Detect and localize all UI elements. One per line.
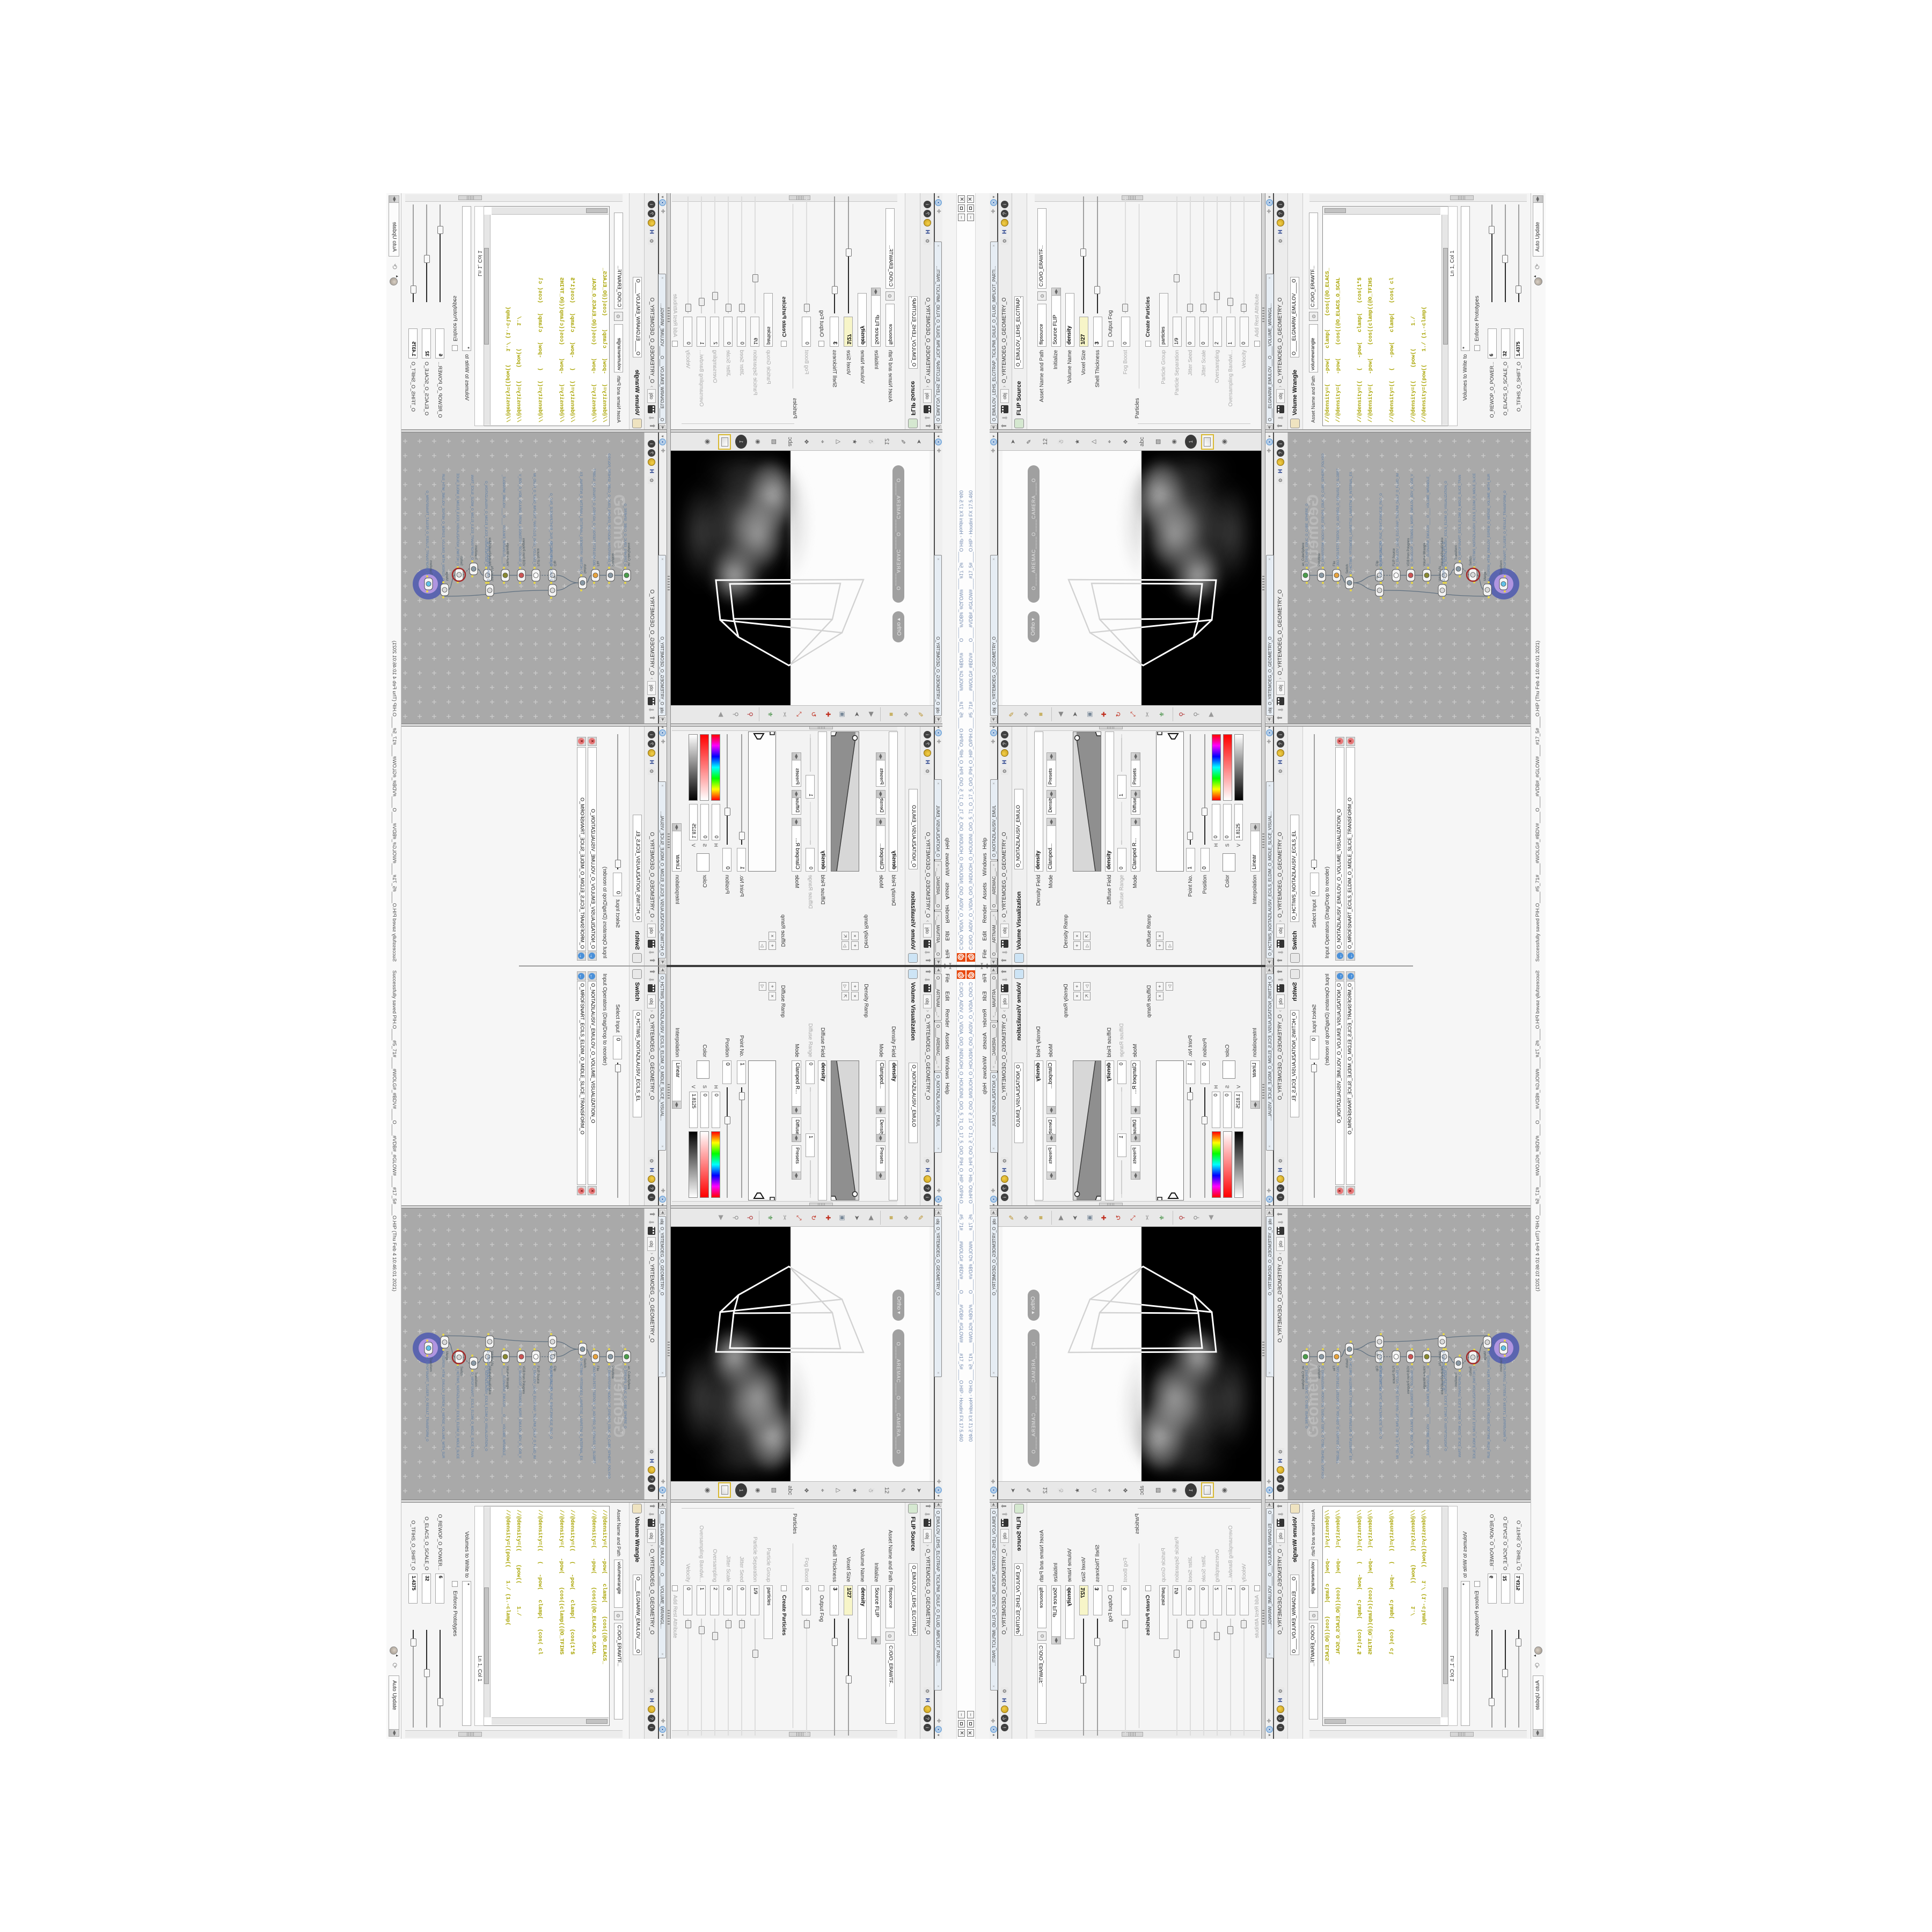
- svg-text:O_HCTIWS_YRTEMOEG_LANRETXE_LAN: O_HCTIWS_YRTEMOEG_LANRETXE_LANRETNI_O_IN…: [579, 472, 582, 574]
- svg-text:O_EACGHDULVK_PILC_O: O_EACGHDULVK_PILC_O: [1380, 541, 1383, 581]
- svg-text:Transform: Transform: [1455, 545, 1458, 560]
- svg-text:Merge: Merge: [445, 571, 448, 581]
- svg-text:Switch: Switch: [459, 556, 463, 566]
- svg-text:O_EGREM_HTIW_EMULOV_EGREM_O_ME: O_EGREM_HTIW_EMULOV_EGREM_O_MERGE_VOLUME…: [441, 1351, 444, 1459]
- svg-text:Transform: Transform: [429, 560, 432, 575]
- svg-text:O_EREHPS_EBUC_O_CUBE_SPHERE_O: O_EREHPS_EBUC_O_CUBE_SPHERE_O: [623, 503, 626, 566]
- svg-text:O_MROFSNART_ECILS_ELDIM_O_MIDL: O_MROFSNART_ECILS_ELDIM_O_MIDLE_SLICE_TR…: [470, 1372, 473, 1457]
- svg-text:VolumeVis: VolumeVis: [490, 1351, 493, 1366]
- svg-text:O_MROFSNART_TLUSER_O_RESULT_TR: O_MROFSNART_TLUSER_O_RESULT_TRANSFORM_O: [1504, 1357, 1507, 1441]
- svg-text:O_MROFSNART_ECILS_ELDIM_O_MIDL: O_MROFSNART_ECILS_ELDIM_O_MIDLE_SLICE_TR…: [1459, 1372, 1462, 1457]
- svg-text:Transform: Transform: [1500, 1357, 1503, 1372]
- svg-text:O_EGREM_HTIW_EMULOV_EGREM_O_ME: O_EGREM_HTIW_EMULOV_EGREM_O_MERGE_VOLUME…: [1488, 473, 1491, 581]
- svg-text:Clip: Clip: [1376, 1351, 1379, 1357]
- svg-text:O_SNOGLOP_YRTEMOEG_MORF_EMULOV: O_SNOGLOP_YRTEMOEG_MORF_EMULOV_BDV_O_VDB…: [1411, 474, 1414, 566]
- svg-text:Clip: Clip: [553, 575, 556, 581]
- svg-text:JBO.MD3.PETS.TSEPOLS_O_AGUNEG_: JBO.MD3.PETS.TSEPOLS_O_AGUNEG_O_GENUSS_O…: [592, 469, 595, 566]
- svg-text:VDB from Polygons: VDB from Polygons: [1407, 1366, 1410, 1394]
- svg-text:O_MQKGRTBSLKJ_SIV_O: O_MQKGRTBSLKJ_SIV_O: [486, 541, 489, 581]
- svg-text:Transform: Transform: [474, 545, 477, 560]
- svg-text:O_EMARFERIW_NOGYLOP_EREHPS_EBU: O_EMARFERIW_NOGYLOP_EREHPS_EBUC_O_CUBE_S…: [1322, 453, 1325, 566]
- svg-text:O_HCTIWS_YRTEMOEG_LANRETXE_LAN: O_HCTIWS_YRTEMOEG_LANRETXE_LANRETNI_O_IN…: [1350, 472, 1353, 574]
- svg-text:O_MQKGRTBSLKJ_SIV_O: O_MQKGRTBSLKJ_SIV_O: [1443, 541, 1446, 581]
- svg-text:O_SNOGLOP_YRTEMOEG_MORF_EMULOV: O_SNOGLOP_YRTEMOEG_MORF_EMULOV_BDV_O_VDB…: [1411, 1366, 1414, 1458]
- svg-text:VDB from Polygons: VDB from Polygons: [1407, 538, 1410, 566]
- svg-text:O_EGREM_HTIW_EMULOV_EGREM_O_ME: O_EGREM_HTIW_EMULOV_EGREM_O_MERGE_VOLUME…: [441, 473, 444, 581]
- svg-text:O_HCTIWS_NOITAZILAUSIV_ECILS_E: O_HCTIWS_NOITAZILAUSIV_ECILS_ELDIM_O_MID…: [1473, 473, 1476, 566]
- svg-text:O_EMARFERIW_NOGYLOP_EREHPS_EBU: O_EMARFERIW_NOGYLOP_EREHPS_EBUC_O_CUBE_S…: [1322, 1366, 1325, 1479]
- svg-text:Switch: Switch: [583, 564, 586, 574]
- svg-text:O_MROFSNART_TLUSER_O_RESULT_TR: O_MROFSNART_TLUSER_O_RESULT_TRANSFORM_O: [1504, 491, 1507, 575]
- svg-text:File: File: [596, 1366, 599, 1371]
- svg-text:Volume Wrangle: Volume Wrangle: [506, 1366, 509, 1390]
- svg-text:VDB from Polygons: VDB from Polygons: [522, 1366, 525, 1394]
- svg-text:VolumeVis: VolumeVis: [1439, 1351, 1442, 1366]
- svg-text:O_EREHPS_EBUC_O_CUBE_SPHERE_O: O_EREHPS_EBUC_O_CUBE_SPHERE_O: [1306, 503, 1309, 566]
- svg-text:Volume Wrangle: Volume Wrangle: [1423, 542, 1426, 566]
- svg-text:JBO.MD3.PETS.TSEPOLS_O_AGUNEG_: JBO.MD3.PETS.TSEPOLS_O_AGUNEG_O_GENUSS_O…: [1337, 469, 1340, 566]
- svg-text:O____ELGNARW_EMULOV____O____VO: O____ELGNARW_EMULOV____O____VOLUME_WRANG…: [1427, 1366, 1430, 1458]
- svg-text:O_EMARFERIW_NOGYLOP_EREHPS_EBU: O_EMARFERIW_NOGYLOP_EREHPS_EBUC_O_CUBE_S…: [607, 453, 610, 566]
- svg-text:an_CubeSphere: an_CubeSphere: [1302, 1366, 1305, 1389]
- svg-text:O_EREHPS_EBUC_O_CUBE_SPHERE_O: O_EREHPS_EBUC_O_CUBE_SPHERE_O: [1306, 1366, 1309, 1429]
- svg-text:O_HCTIWS_YRTEMOEG_LANRETXE_LAN: O_HCTIWS_YRTEMOEG_LANRETXE_LANRETNI_O_IN…: [1350, 1358, 1353, 1460]
- svg-text:O_EREHPS_EBUC_O_CUBE_SPHERE_O: O_EREHPS_EBUC_O_CUBE_SPHERE_O: [623, 1366, 626, 1429]
- svg-text:FLIP Source: FLIP Source: [1393, 548, 1396, 566]
- svg-text:PolyWire: PolyWire: [611, 1366, 614, 1379]
- svg-text:Volume Wrangle: Volume Wrangle: [1423, 1366, 1426, 1390]
- svg-text:Clip: Clip: [1376, 1366, 1379, 1372]
- svg-text:Clip: Clip: [553, 560, 556, 566]
- svg-text:Clip: Clip: [1376, 575, 1379, 581]
- svg-text:Transform: Transform: [474, 1372, 477, 1387]
- svg-text:Clip: Clip: [553, 1351, 556, 1357]
- svg-text:Merge: Merge: [1484, 1351, 1487, 1361]
- svg-text:O_EMULOV_LEHS_ELCITRAP_TICILPM: O_EMULOV_LEHS_ELCITRAP_TICILPMI_DIULF_O_…: [532, 1366, 536, 1459]
- svg-text:O_EACGHDULVK_PILC_O: O_EACGHDULVK_PILC_O: [1380, 1351, 1383, 1391]
- svg-text:Switch: Switch: [1469, 556, 1473, 566]
- svg-text:O_EGREM_HTIW_EMULOV_EGREM_O_ME: O_EGREM_HTIW_EMULOV_EGREM_O_MERGE_VOLUME…: [1488, 1351, 1491, 1459]
- svg-text:JBO.MD3.PETS.TSEPOLS_O_AGUNEG_: JBO.MD3.PETS.TSEPOLS_O_AGUNEG_O_GENUSS_O…: [592, 1366, 595, 1463]
- svg-text:FLIP Source: FLIP Source: [1393, 1366, 1396, 1384]
- svg-text:O____ELGNARW_EMULOV____O____VO: O____ELGNARW_EMULOV____O____VOLUME_WRANG…: [1427, 474, 1430, 566]
- svg-text:PolyWire: PolyWire: [1318, 1366, 1321, 1379]
- svg-text:FLIP Source: FLIP Source: [536, 548, 539, 566]
- svg-text:Switch: Switch: [1346, 1358, 1349, 1368]
- svg-text:O_EMARFERIW_NOGYLOP_EREHPS_EBU: O_EMARFERIW_NOGYLOP_EREHPS_EBUC_O_CUBE_S…: [607, 1366, 610, 1479]
- svg-text:O_MQKGRTBSLKJ_SIV_O: O_MQKGRTBSLKJ_SIV_O: [1443, 1351, 1446, 1391]
- svg-text:O_MQKGRTBSLKJ_SIV_O: O_MQKGRTBSLKJ_SIV_O: [486, 1351, 489, 1391]
- svg-text:O_EACGHDULVK_PILC_O: O_EACGHDULVK_PILC_O: [549, 1351, 552, 1391]
- svg-text:JBO.MD3.PETS.TSEPOLS_O_AGUNEG_: JBO.MD3.PETS.TSEPOLS_O_AGUNEG_O_GENUSS_O…: [1337, 1366, 1340, 1463]
- svg-text:O_HCTIWS_YRTEMOEG_LANRETXE_LAN: O_HCTIWS_YRTEMOEG_LANRETXE_LANRETNI_O_IN…: [579, 1358, 582, 1460]
- svg-text:O____ELGNARW_EMULOV____O____VO: O____ELGNARW_EMULOV____O____VOLUME_WRANG…: [502, 474, 505, 566]
- svg-text:File: File: [1333, 561, 1336, 566]
- svg-text:Switch: Switch: [1346, 564, 1349, 574]
- svg-text:Transform: Transform: [1455, 1372, 1458, 1387]
- svg-text:O_EACGHDULVK_PILC_O: O_EACGHDULVK_PILC_O: [549, 541, 552, 581]
- svg-text:an_CubeSphere: an_CubeSphere: [627, 1366, 630, 1389]
- svg-text:an_CubeSphere: an_CubeSphere: [627, 543, 630, 566]
- svg-text:O_HCTIWS_NOITAZILAUSIV_ECILS_E: O_HCTIWS_NOITAZILAUSIV_ECILS_ELDIM_O_MID…: [456, 1366, 459, 1459]
- svg-text:Clip: Clip: [553, 1366, 556, 1372]
- svg-text:Transform: Transform: [1500, 560, 1503, 575]
- svg-text:O_MROFSNART_ECILS_ELDIM_O_MIDL: O_MROFSNART_ECILS_ELDIM_O_MIDLE_SLICE_TR…: [1459, 475, 1462, 560]
- svg-text:Switch: Switch: [459, 1366, 463, 1376]
- svg-text:VDB from Polygons: VDB from Polygons: [522, 538, 525, 566]
- svg-text:File: File: [596, 561, 599, 566]
- svg-text:O_HCTIWS_NOITAZILAUSIV_ECILS_E: O_HCTIWS_NOITAZILAUSIV_ECILS_ELDIM_O_MID…: [456, 473, 459, 566]
- svg-text:Transform: Transform: [429, 1357, 432, 1372]
- svg-text:O_HCTIWS_NOITAZILAUSIV_ECILS_E: O_HCTIWS_NOITAZILAUSIV_ECILS_ELDIM_O_MID…: [1473, 1366, 1476, 1459]
- svg-text:VolumeVis: VolumeVis: [1439, 566, 1442, 581]
- svg-text:O_EMULOV_LEHS_ELCITRAP_TICILPM: O_EMULOV_LEHS_ELCITRAP_TICILPMI_DIULF_O_…: [1396, 1366, 1400, 1459]
- svg-text:PolyWire: PolyWire: [611, 553, 614, 566]
- svg-text:Switch: Switch: [1469, 1366, 1473, 1376]
- svg-text:Volume Wrangle: Volume Wrangle: [506, 542, 509, 566]
- svg-text:O_MROFSNART_TLUSER_O_RESULT_TR: O_MROFSNART_TLUSER_O_RESULT_TRANSFORM_O: [425, 1357, 428, 1441]
- svg-text:O_EMULOV_LEHS_ELCITRAP_TICILPM: O_EMULOV_LEHS_ELCITRAP_TICILPMI_DIULF_O_…: [1396, 473, 1400, 566]
- svg-text:O_EMULOV_LEHS_ELCITRAP_TICILPM: O_EMULOV_LEHS_ELCITRAP_TICILPMI_DIULF_O_…: [532, 473, 536, 566]
- svg-text:O_SNOGLOP_YRTEMOEG_MORF_EMULOV: O_SNOGLOP_YRTEMOEG_MORF_EMULOV_BDV_O_VDB…: [518, 1366, 521, 1458]
- svg-text:O_MROFSNART_ECILS_ELDIM_O_MIDL: O_MROFSNART_ECILS_ELDIM_O_MIDLE_SLICE_TR…: [470, 475, 473, 560]
- svg-text:Clip: Clip: [1376, 560, 1379, 566]
- svg-text:FLIP Source: FLIP Source: [536, 1366, 539, 1384]
- svg-text:O_MROFSNART_TLUSER_O_RESULT_TR: O_MROFSNART_TLUSER_O_RESULT_TRANSFORM_O: [425, 491, 428, 575]
- svg-text:Merge: Merge: [1484, 571, 1487, 581]
- svg-text:PolyWire: PolyWire: [1318, 553, 1321, 566]
- svg-text:Merge: Merge: [445, 1351, 448, 1361]
- svg-text:Switch: Switch: [583, 1358, 586, 1368]
- svg-text:VolumeVis: VolumeVis: [490, 566, 493, 581]
- svg-text:File: File: [1333, 1366, 1336, 1371]
- svg-text:O____ELGNARW_EMULOV____O____VO: O____ELGNARW_EMULOV____O____VOLUME_WRANG…: [502, 1366, 505, 1458]
- svg-text:an_CubeSphere: an_CubeSphere: [1302, 543, 1305, 566]
- svg-text:O_SNOGLOP_YRTEMOEG_MORF_EMULOV: O_SNOGLOP_YRTEMOEG_MORF_EMULOV_BDV_O_VDB…: [518, 474, 521, 566]
